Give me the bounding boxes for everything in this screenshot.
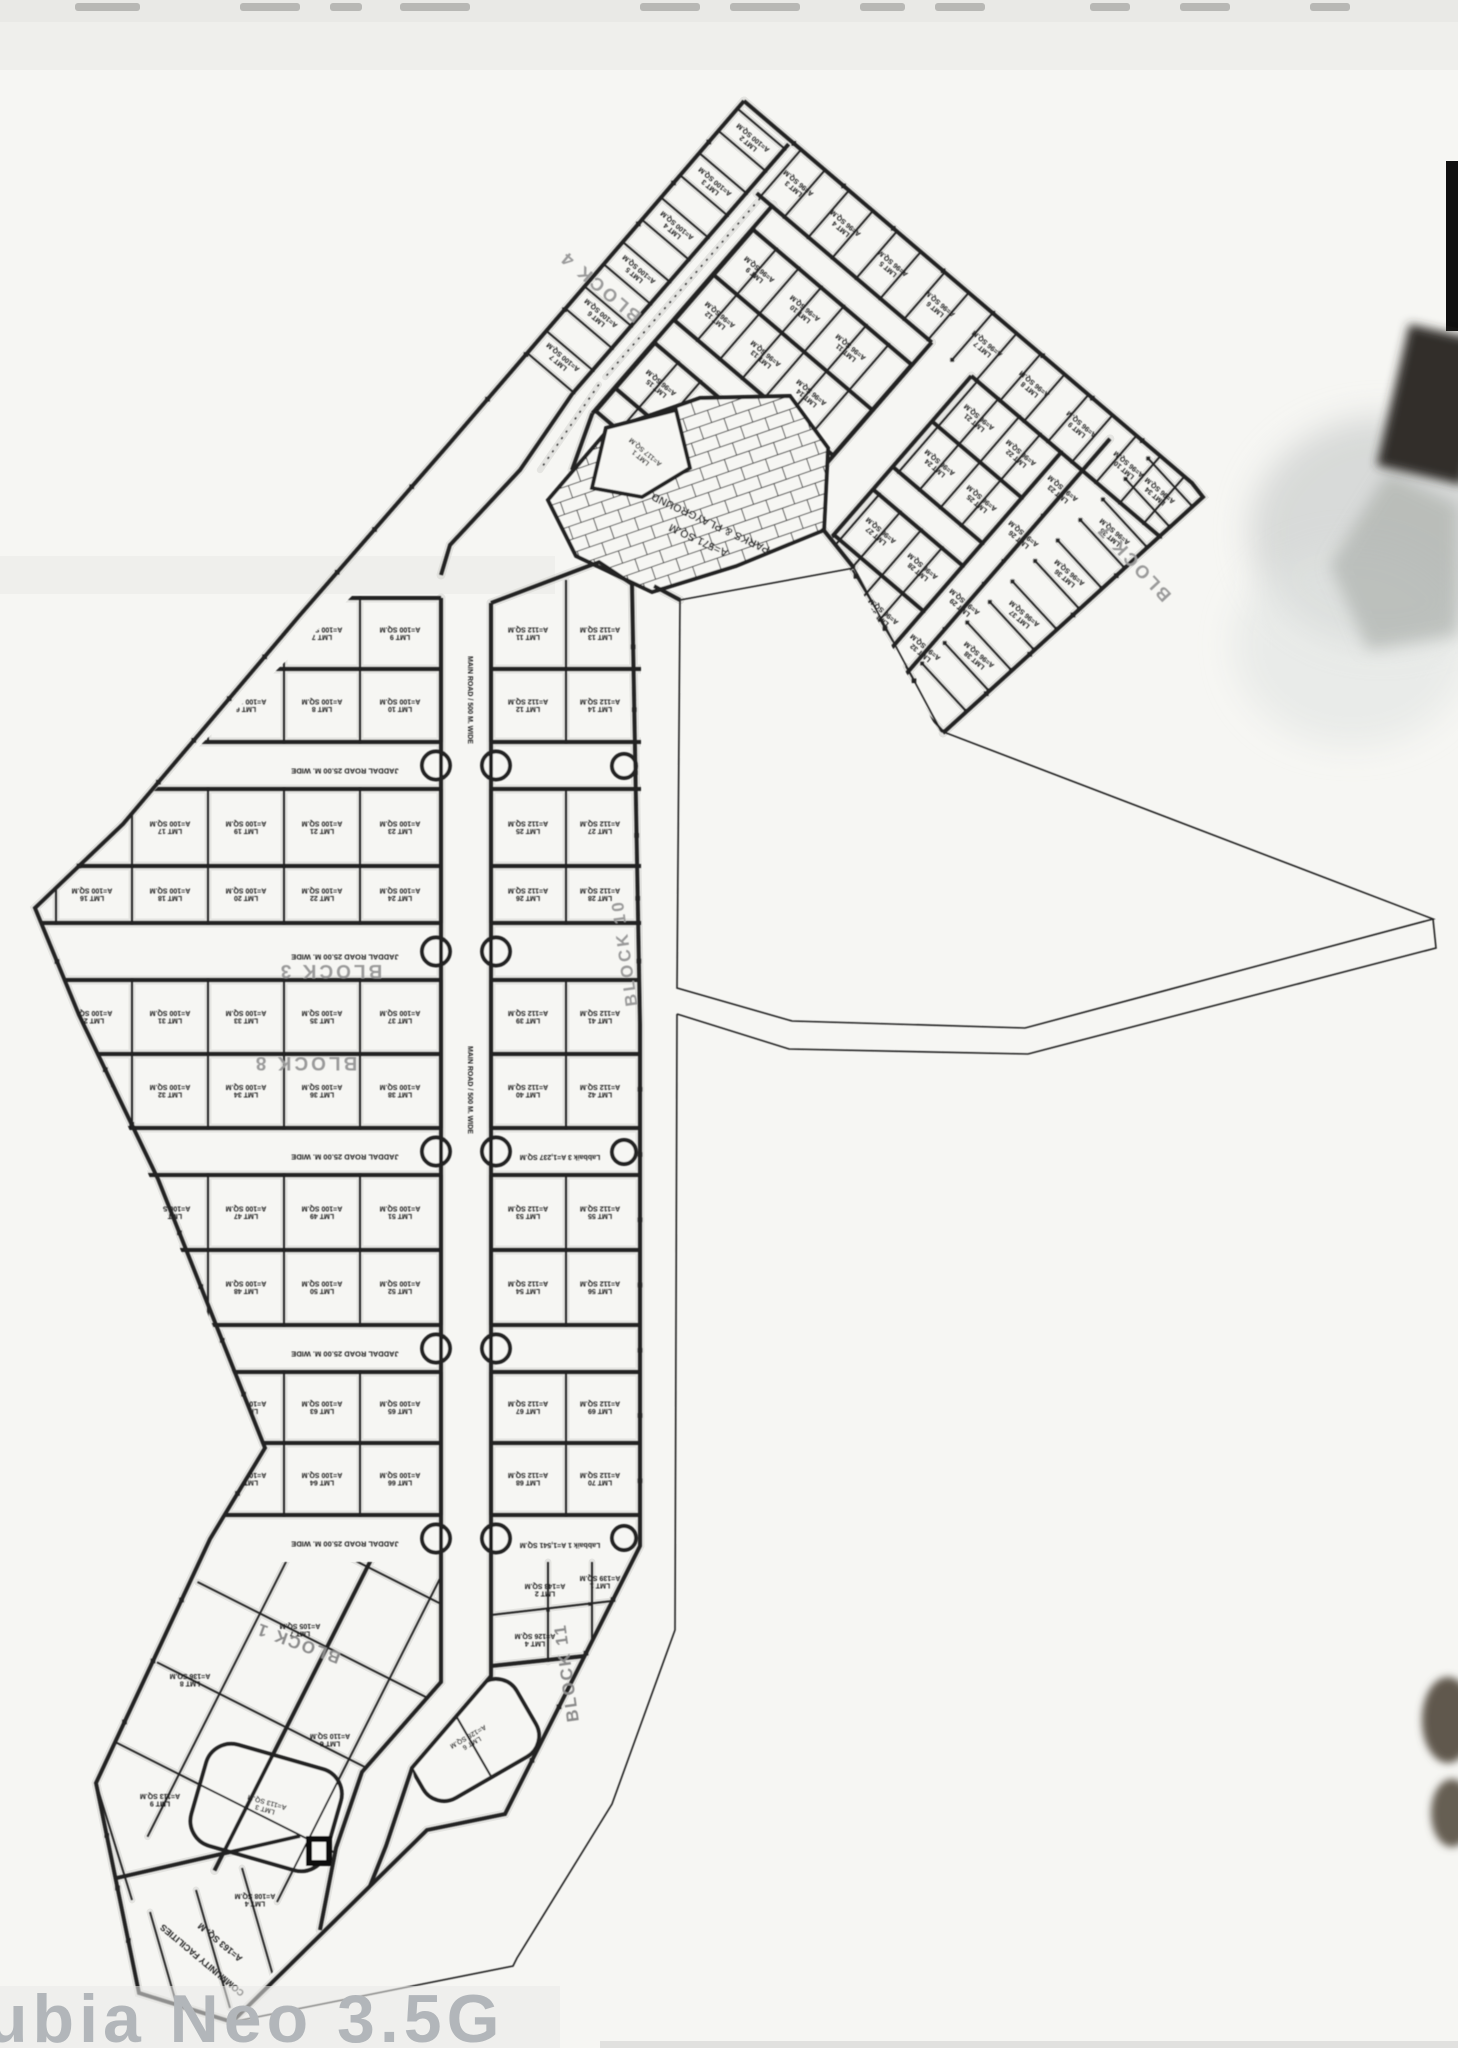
svg-text:A=112 SQ.M: A=112 SQ.M bbox=[508, 887, 548, 894]
svg-text:A=105 SQ.M: A=105 SQ.M bbox=[280, 1622, 321, 1629]
svg-text:LMT 16: LMT 16 bbox=[80, 894, 104, 901]
svg-text:LMT 53: LMT 53 bbox=[516, 1212, 540, 1219]
svg-text:A=100 SQ.M: A=100 SQ.M bbox=[226, 1280, 267, 1287]
svg-text:LMT 54: LMT 54 bbox=[516, 1287, 540, 1294]
svg-text:A=100 SQ.M: A=100 SQ.M bbox=[302, 1205, 343, 1212]
svg-text:A=100 SQ.M: A=100 SQ.M bbox=[302, 1280, 343, 1287]
svg-text:LMT 25: LMT 25 bbox=[516, 827, 540, 834]
svg-text:A=100 SQ.M: A=100 SQ.M bbox=[380, 698, 421, 705]
svg-text:LMT 66: LMT 66 bbox=[388, 1479, 412, 1486]
svg-text:Labbaik 1 A=1,541 SQ.M: Labbaik 1 A=1,541 SQ.M bbox=[520, 1541, 601, 1548]
svg-text:A=100 SQ.M: A=100 SQ.M bbox=[72, 887, 113, 894]
svg-text:LMT 32: LMT 32 bbox=[158, 1091, 182, 1098]
svg-text:Labbaik 3 A=1,237 SQ.M: Labbaik 3 A=1,237 SQ.M bbox=[520, 1153, 601, 1160]
svg-text:A=112 SQ.M: A=112 SQ.M bbox=[508, 698, 548, 705]
svg-text:A=100 SQ.M: A=100 SQ.M bbox=[302, 887, 343, 894]
svg-text:A=143 SQ.M: A=143 SQ.M bbox=[525, 1582, 566, 1589]
svg-text:A=100 SQ.M: A=100 SQ.M bbox=[380, 887, 421, 894]
svg-text:A=100 SQ.M: A=100 SQ.M bbox=[226, 1083, 267, 1090]
svg-text:LMT 26: LMT 26 bbox=[516, 894, 540, 901]
svg-text:LMT 8: LMT 8 bbox=[312, 705, 332, 712]
svg-text:A=100 SQ.M: A=100 SQ.M bbox=[302, 1009, 343, 1016]
svg-text:A=108 SQ.M: A=108 SQ.M bbox=[235, 1892, 276, 1899]
svg-text:A=112 SQ.M: A=112 SQ.M bbox=[508, 1009, 548, 1016]
svg-text:JADDAL ROAD 25.00 M. WIDE: JADDAL ROAD 25.00 M. WIDE bbox=[291, 1540, 398, 1549]
svg-text:A=139 SQ.M: A=139 SQ.M bbox=[580, 1574, 621, 1581]
svg-text:A=100 SQ.M: A=100 SQ.M bbox=[380, 626, 421, 633]
svg-text:A=110 SQ.M: A=110 SQ.M bbox=[310, 1732, 350, 1739]
svg-text:A=136 SQ.M: A=136 SQ.M bbox=[170, 1672, 211, 1679]
svg-text:LMT 7: LMT 7 bbox=[312, 633, 332, 640]
svg-text:LMT 68: LMT 68 bbox=[516, 1479, 540, 1486]
svg-text:A=100 SQ.M: A=100 SQ.M bbox=[226, 820, 267, 827]
svg-text:LMT 67: LMT 67 bbox=[516, 1407, 540, 1414]
svg-text:LMT 31: LMT 31 bbox=[158, 1017, 182, 1024]
svg-text:A=100 SQ.M: A=100 SQ.M bbox=[302, 1471, 343, 1478]
svg-text:A=100 SQ.M: A=100 SQ.M bbox=[226, 887, 267, 894]
svg-text:LMT 18: LMT 18 bbox=[158, 894, 182, 901]
svg-text:A=112 SQ.M: A=112 SQ.M bbox=[580, 1205, 620, 1212]
svg-text:A=100 SQ.M: A=100 SQ.M bbox=[380, 1471, 421, 1478]
svg-text:LMT 52: LMT 52 bbox=[388, 1287, 412, 1294]
svg-text:A=100 SQ.M: A=100 SQ.M bbox=[380, 1280, 421, 1287]
svg-text:A=112 SQ.M: A=112 SQ.M bbox=[508, 626, 548, 633]
svg-text:LMT 47: LMT 47 bbox=[234, 1212, 258, 1219]
svg-text:A=112 SQ.M: A=112 SQ.M bbox=[580, 1471, 620, 1478]
svg-text:LMT 34: LMT 34 bbox=[234, 1091, 258, 1098]
svg-text:A=112 SQ.M: A=112 SQ.M bbox=[508, 1083, 548, 1090]
svg-text:LMT 11: LMT 11 bbox=[516, 633, 540, 640]
svg-text:A=112 SQ.M: A=112 SQ.M bbox=[580, 820, 620, 827]
svg-text:LMT 6: LMT 6 bbox=[320, 1740, 340, 1747]
svg-text:A=100 SQ.M: A=100 SQ.M bbox=[380, 820, 421, 827]
svg-text:LMT 70: LMT 70 bbox=[588, 1479, 612, 1486]
svg-text:LMT 42: LMT 42 bbox=[588, 1091, 612, 1098]
svg-text:A=112 SQ.M: A=112 SQ.M bbox=[508, 1280, 548, 1287]
svg-text:LMT 28: LMT 28 bbox=[588, 894, 612, 901]
svg-text:LMT 23: LMT 23 bbox=[388, 827, 412, 834]
svg-text:LMT 21: LMT 21 bbox=[310, 827, 334, 834]
svg-text:LMT 49: LMT 49 bbox=[310, 1212, 334, 1219]
svg-text:LMT 41: LMT 41 bbox=[588, 1017, 612, 1024]
svg-text:JADDAL ROAD 25.00 M. WIDE: JADDAL ROAD 25.00 M. WIDE bbox=[291, 767, 398, 776]
svg-text:LMT 8: LMT 8 bbox=[180, 1680, 200, 1687]
svg-text:A=100 SQ.M: A=100 SQ.M bbox=[380, 1083, 421, 1090]
svg-text:A=112 SQ.M: A=112 SQ.M bbox=[580, 626, 620, 633]
svg-text:A=100 SQ.M: A=100 SQ.M bbox=[302, 698, 343, 705]
svg-text:LMT 4: LMT 4 bbox=[525, 1640, 545, 1647]
svg-text:BLOCK 8: BLOCK 8 bbox=[253, 1052, 357, 1073]
svg-text:LMT 55: LMT 55 bbox=[588, 1212, 612, 1219]
svg-text:MAIN ROAD / 500 M. WIDE: MAIN ROAD / 500 M. WIDE bbox=[466, 1046, 473, 1134]
svg-text:JADDAL ROAD 25.00 M. WIDE: JADDAL ROAD 25.00 M. WIDE bbox=[291, 1153, 398, 1162]
svg-text:A=100 SQ.M: A=100 SQ.M bbox=[226, 1009, 267, 1016]
svg-text:A=112 SQ.M: A=112 SQ.M bbox=[508, 820, 548, 827]
svg-text:A=100 SQ.M: A=100 SQ.M bbox=[150, 887, 191, 894]
svg-text:A=100 SQ.M: A=100 SQ.M bbox=[302, 1400, 343, 1407]
svg-text:LMT 37: LMT 37 bbox=[388, 1017, 412, 1024]
svg-text:LMT 17: LMT 17 bbox=[158, 827, 182, 834]
svg-text:A=100 SQ.M: A=100 SQ.M bbox=[226, 1205, 267, 1212]
svg-text:LMT 35: LMT 35 bbox=[310, 1017, 334, 1024]
svg-text:LMT 33: LMT 33 bbox=[234, 1017, 258, 1024]
svg-text:LMT 48: LMT 48 bbox=[234, 1287, 258, 1294]
svg-text:A=100 SQ.M: A=100 SQ.M bbox=[380, 1400, 421, 1407]
svg-text:LMT 12: LMT 12 bbox=[516, 705, 540, 712]
svg-text:LMT 65: LMT 65 bbox=[388, 1407, 412, 1414]
svg-text:LMT 50: LMT 50 bbox=[310, 1287, 334, 1294]
svg-text:A=112 SQ.M: A=112 SQ.M bbox=[580, 1400, 620, 1407]
svg-text:A=112 SQ.M: A=112 SQ.M bbox=[580, 1009, 620, 1016]
svg-text:A=112 SQ.M: A=112 SQ.M bbox=[508, 1205, 548, 1212]
svg-text:A=100 SQ.M: A=100 SQ.M bbox=[150, 820, 191, 827]
svg-text:LMT 51: LMT 51 bbox=[388, 1212, 412, 1219]
svg-text:MAIN ROAD / 500 M. WIDE: MAIN ROAD / 500 M. WIDE bbox=[466, 656, 473, 744]
svg-text:LMT 22: LMT 22 bbox=[310, 894, 334, 901]
svg-text:A=100 SQ.M: A=100 SQ.M bbox=[302, 820, 343, 827]
svg-text:A=112 SQ.M: A=112 SQ.M bbox=[580, 698, 620, 705]
svg-text:LMT 9: LMT 9 bbox=[150, 1800, 170, 1807]
svg-text:LMT 19: LMT 19 bbox=[234, 827, 258, 834]
svg-text:LMT 20: LMT 20 bbox=[234, 894, 258, 901]
svg-text:LMT 2: LMT 2 bbox=[535, 1590, 555, 1597]
svg-text:LMT 14: LMT 14 bbox=[588, 705, 612, 712]
svg-text:LMT 24: LMT 24 bbox=[388, 894, 412, 901]
svg-text:A=112 SQ.M: A=112 SQ.M bbox=[580, 1083, 620, 1090]
svg-text:LMT 10: LMT 10 bbox=[388, 705, 412, 712]
svg-text:LMT 1: LMT 1 bbox=[590, 1582, 610, 1589]
svg-text:LMT 27: LMT 27 bbox=[588, 827, 612, 834]
svg-text:LMT 56: LMT 56 bbox=[588, 1287, 612, 1294]
svg-text:A=100 SQ.M: A=100 SQ.M bbox=[302, 1083, 343, 1090]
svg-text:A=112 SQ.M: A=112 SQ.M bbox=[580, 887, 620, 894]
svg-text:A=100 SQ.M: A=100 SQ.M bbox=[150, 1009, 191, 1016]
svg-text:LMT 13: LMT 13 bbox=[588, 633, 612, 640]
svg-text:A=126 SQ.M: A=126 SQ.M bbox=[515, 1632, 556, 1639]
svg-text:A=100 SQ.M: A=100 SQ.M bbox=[380, 1205, 421, 1212]
svg-text:JADDAL ROAD 25.00 M. WIDE: JADDAL ROAD 25.00 M. WIDE bbox=[291, 1350, 398, 1359]
svg-text:BLOCK 3: BLOCK 3 bbox=[278, 960, 382, 981]
svg-text:A=112 SQ.M: A=112 SQ.M bbox=[508, 1471, 548, 1478]
svg-text:LMT 63: LMT 63 bbox=[310, 1407, 334, 1414]
svg-text:LMT 69: LMT 69 bbox=[588, 1407, 612, 1414]
svg-text:A=100 SQ.M: A=100 SQ.M bbox=[150, 1083, 191, 1090]
svg-text:LMT 38: LMT 38 bbox=[388, 1091, 412, 1098]
svg-text:LMT 40: LMT 40 bbox=[516, 1091, 540, 1098]
svg-text:A=112 SQ.M: A=112 SQ.M bbox=[580, 1280, 620, 1287]
svg-text:ubia Neo 3.5G: ubia Neo 3.5G bbox=[0, 1981, 504, 2048]
svg-text:A=112 SQ.M: A=112 SQ.M bbox=[508, 1400, 548, 1407]
svg-text:LMT 36: LMT 36 bbox=[310, 1091, 334, 1098]
svg-text:A=113 SQ.M: A=113 SQ.M bbox=[140, 1792, 180, 1799]
svg-text:LMT 4: LMT 4 bbox=[245, 1900, 265, 1907]
svg-text:LMT 9: LMT 9 bbox=[390, 633, 410, 640]
svg-text:LMT 39: LMT 39 bbox=[516, 1017, 540, 1024]
svg-text:A=100 SQ.M: A=100 SQ.M bbox=[380, 1009, 421, 1016]
svg-text:LMT 64: LMT 64 bbox=[310, 1479, 334, 1486]
